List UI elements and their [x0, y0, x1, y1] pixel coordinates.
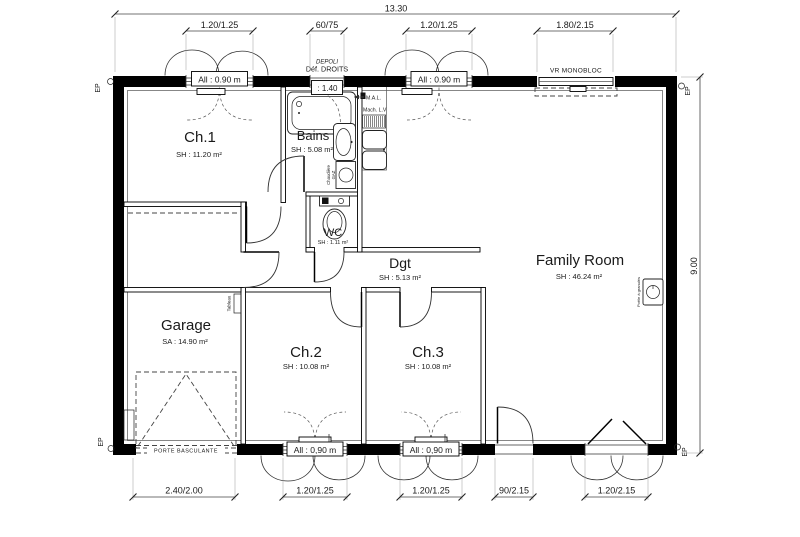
dishwasher-label: Mach. L.V: [363, 108, 387, 114]
floor-plan-canvas: PORTE BASCULANTE: [0, 0, 800, 537]
dim-bottom-1: 2.40/2.00: [165, 486, 203, 496]
door-arc-ch3: [400, 292, 432, 327]
electrical-panel: Tableau: [227, 294, 242, 313]
shutter-arc: [378, 456, 478, 480]
window-roller-shutter: [535, 76, 617, 97]
ep-label-bl: EP: [98, 437, 105, 447]
door-arc-ch1: [247, 207, 282, 244]
room-area-family: SH : 46.24 m²: [556, 272, 603, 281]
wall-niche: [124, 410, 134, 440]
room-area-wc: SH : 1.11 m²: [318, 240, 349, 246]
depoli-height-label: : 1.40: [317, 84, 338, 93]
ep-label-tr: EP: [685, 86, 692, 96]
dim-top-1: 1.20/1.25: [201, 20, 239, 30]
floor-plan-page: PORTE BASCULANTE: [0, 0, 800, 537]
garage-door: PORTE BASCULANTE: [136, 372, 237, 456]
dim-bottom-5: 1.20/2.15: [598, 486, 636, 496]
ep-label-tl: EP: [95, 83, 102, 93]
sill-label-ch3: All : 0,90 m: [410, 445, 453, 455]
dim-bottom-3: 1.20/1.25: [412, 486, 450, 496]
dim-top-4: 1.80/2.15: [556, 20, 594, 30]
kitchen-sink-basin: [363, 151, 387, 170]
room-label-ch1: Ch.1: [184, 129, 216, 146]
boiler-label-2: GAZ: [331, 170, 336, 179]
roller-shutter-label: VR MONOBLOC: [550, 68, 602, 75]
room-area-garage: SA : 14.90 m²: [162, 337, 208, 346]
room-area-dgt: SH : 5.13 m²: [379, 273, 422, 282]
dimension-bottom: 2.40/2.00 1.20/1.25 1.20/1.25 90/2.15 1.…: [130, 458, 652, 501]
room-area-ch2: SH : 10.08 m²: [283, 362, 330, 371]
room-area-ch1: SH : 11.20 m²: [176, 150, 222, 159]
room-label-bains: Bains: [297, 128, 330, 143]
room-label-garage: Garage: [161, 317, 211, 334]
door-arc-storage: [244, 252, 280, 288]
dim-overall-width: 13.30: [385, 4, 408, 14]
dim-top-3: 1.20/1.25: [420, 20, 458, 30]
door-arc-wc: [315, 252, 345, 282]
electrical-panel-label: Tableau: [227, 295, 232, 311]
gas-boiler: Chaudière GAZ: [326, 162, 356, 189]
garage-door-label: PORTE BASCULANTE: [154, 449, 218, 455]
dim-bottom-2: 1.20/1.25: [296, 486, 334, 496]
shutter-arc: [261, 456, 365, 482]
room-label-family: Family Room: [536, 252, 624, 269]
room-label-dgt: Dgt: [389, 255, 411, 271]
pellet-stove: Poêle à granulés: [636, 277, 663, 307]
room-label-ch2: Ch.2: [290, 344, 322, 361]
sill-label-top2: All : 0.90 m: [418, 75, 461, 85]
door-arc-bains: [268, 156, 304, 192]
outlet-symbol: [361, 93, 366, 100]
room-label-wc: WC: [324, 227, 342, 239]
pellet-stove-label: Poêle à granulés: [636, 277, 641, 307]
drainboard: [363, 115, 386, 128]
washbasin: [334, 124, 356, 161]
washing-machine-label: M.A.L.: [366, 95, 381, 101]
kitchen-sink-basin: [363, 131, 387, 150]
sill-label-top1: All : 0.90 m: [198, 75, 241, 85]
room-area-ch3: SH : 10.08 m²: [405, 362, 452, 371]
dimension-right: 9.00: [681, 74, 704, 457]
room-label-ch3: Ch.3: [412, 344, 444, 361]
entrance-door: [495, 407, 533, 456]
dim-top-2: 60/75: [316, 20, 339, 30]
dimension-top: 13.30 1.20/1.25 60/75 1.20/1.25 1.80/2.1…: [112, 4, 680, 73]
sill-label-ch2: All : 0,90 m: [294, 445, 337, 455]
def-droits-label: Déf. DROITS: [306, 65, 349, 74]
dim-bottom-4: 90/2.15: [499, 486, 529, 496]
dim-overall-height: 9.00: [689, 257, 699, 275]
ep-label-br: EP: [682, 447, 689, 457]
room-area-bains: SH : 5.08 m²: [291, 145, 334, 154]
door-arc-ch2: [331, 292, 362, 327]
